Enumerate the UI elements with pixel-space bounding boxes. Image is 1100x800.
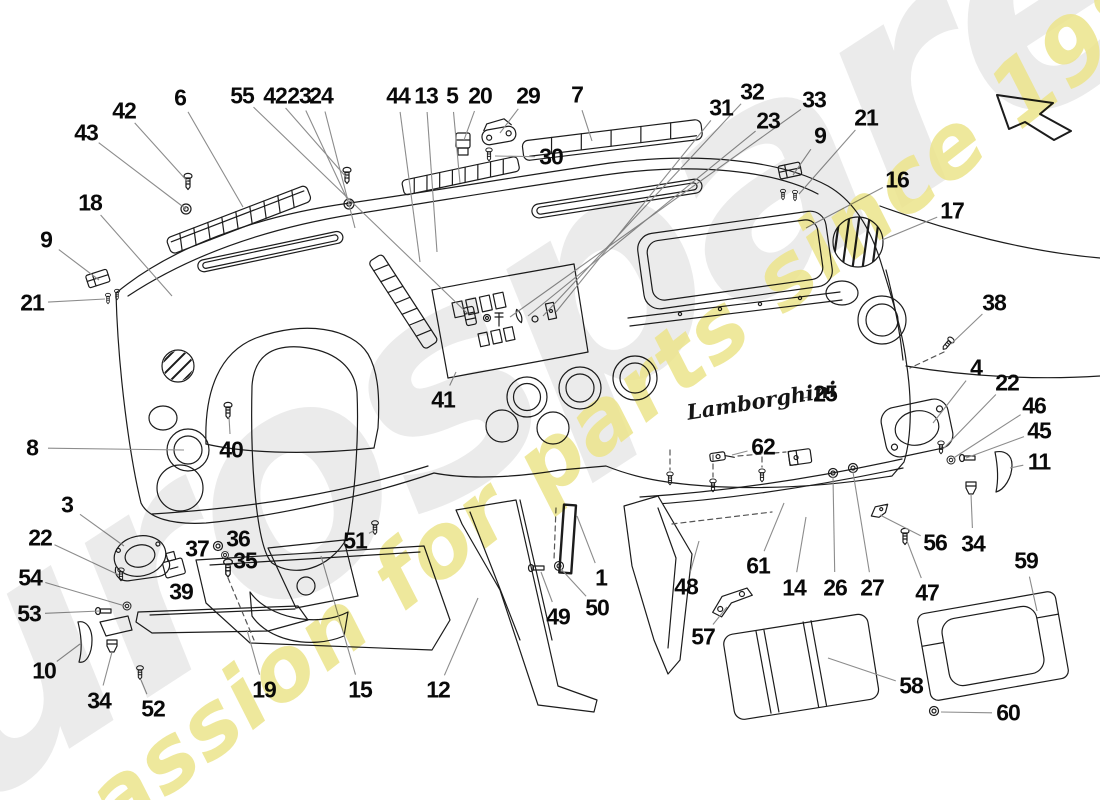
leader-line [828, 658, 896, 681]
callout-32: 32 [740, 81, 764, 104]
leader-line [45, 611, 100, 613]
callout-26: 26 [823, 577, 847, 600]
leader-line [561, 569, 586, 596]
leader-line [247, 630, 260, 675]
callout-21: 21 [854, 107, 878, 130]
callout-9: 9 [40, 229, 52, 252]
leader-line [793, 149, 811, 175]
leader-line [907, 541, 921, 578]
callout-49: 49 [546, 606, 570, 629]
callout-27: 27 [860, 577, 884, 600]
callout-11: 11 [1028, 451, 1050, 474]
callout-24: 24 [309, 85, 333, 108]
leader-line [80, 514, 124, 546]
leader-line [369, 530, 375, 533]
leader-line [966, 437, 1024, 458]
callout-40: 40 [219, 439, 243, 462]
callout-10: 10 [32, 660, 56, 683]
callout-30: 30 [539, 146, 563, 169]
leader-line [464, 111, 475, 140]
leader-line [971, 494, 972, 528]
leader-line [59, 250, 99, 280]
leader-line [101, 215, 172, 296]
callout-18: 18 [78, 192, 102, 215]
leader-line [1010, 465, 1023, 468]
leader-line [500, 109, 518, 133]
callout-37: 37 [185, 538, 209, 561]
callout-34: 34 [87, 690, 111, 713]
callout-13: 13 [414, 85, 438, 108]
leader-line [1029, 577, 1037, 611]
callout-22: 22 [28, 527, 52, 550]
leader-line [582, 110, 592, 141]
leader-line [951, 314, 982, 344]
leader-line [450, 372, 456, 386]
callout-33: 33 [802, 89, 826, 112]
callout-42: 42 [263, 85, 287, 108]
callout-55: 55 [230, 85, 254, 108]
callout-16: 16 [885, 169, 909, 192]
callout-54: 54 [18, 567, 42, 590]
callout-56: 56 [923, 532, 947, 555]
parts-diagram-page: 4342655422324441352029730313223339211617… [0, 0, 1100, 800]
leader-line [427, 112, 437, 252]
leader-line [135, 123, 188, 182]
callout-53: 53 [17, 603, 41, 626]
callout-1: 1 [595, 567, 607, 590]
leader-line [48, 448, 184, 450]
leader-line [853, 472, 869, 572]
leader-line [556, 120, 711, 312]
leader-line [321, 556, 356, 675]
callout-7: 7 [571, 84, 583, 107]
callout-45: 45 [1027, 420, 1051, 443]
leader-line [732, 451, 748, 455]
callout-47: 47 [915, 582, 939, 605]
leader-line [400, 112, 420, 262]
callout-42: 42 [112, 100, 136, 123]
leader-line [952, 415, 1021, 459]
callout-8: 8 [26, 437, 38, 460]
leader-line [764, 503, 784, 551]
callout-61: 61 [746, 555, 770, 578]
leader-line [882, 217, 937, 240]
leader-line [57, 644, 80, 661]
leader-line [541, 572, 552, 602]
leader-line [45, 583, 125, 607]
callout-35: 35 [233, 550, 257, 573]
leader-line [254, 107, 469, 314]
callout-3: 3 [61, 494, 73, 517]
callout-31: 31 [709, 97, 733, 120]
leader-line [713, 607, 727, 625]
leader-line [306, 111, 349, 204]
leader-line [48, 299, 105, 302]
leader-line [690, 541, 699, 572]
callout-12: 12 [426, 679, 450, 702]
callout-14: 14 [782, 577, 806, 600]
callout-4: 4 [970, 357, 982, 380]
leader-line [325, 112, 355, 229]
callout-41: 41 [431, 389, 455, 412]
callout-6: 6 [174, 87, 186, 110]
callout-19: 19 [252, 679, 276, 702]
leader-line [806, 188, 883, 229]
leader-line [797, 517, 806, 572]
callout-51: 51 [343, 530, 367, 553]
leader-line [454, 112, 461, 183]
callout-44: 44 [386, 85, 410, 108]
callout-62: 62 [751, 436, 775, 459]
leader-line [577, 516, 595, 563]
leader-lines-layer [0, 0, 1100, 800]
callout-38: 38 [982, 292, 1006, 315]
callout-23: 23 [287, 85, 311, 108]
leader-line [510, 109, 801, 317]
callout-43: 43 [74, 122, 98, 145]
leader-line [833, 477, 835, 572]
callout-52: 52 [141, 698, 165, 721]
leader-line [99, 143, 186, 209]
callout-29: 29 [516, 85, 540, 108]
leader-line [543, 104, 741, 316]
callout-59: 59 [1014, 550, 1038, 573]
callout-60: 60 [996, 702, 1020, 725]
leader-line [55, 545, 120, 575]
callout-5: 5 [446, 85, 458, 108]
leader-line [880, 515, 921, 536]
callout-34: 34 [961, 533, 985, 556]
callout-39: 39 [169, 581, 193, 604]
leader-line [141, 680, 147, 694]
leader-line [229, 417, 230, 434]
callout-23: 23 [756, 110, 780, 133]
leader-line [943, 395, 996, 450]
callout-9: 9 [814, 125, 826, 148]
leader-line [444, 598, 478, 675]
leader-line [103, 652, 112, 686]
callout-21: 21 [20, 292, 44, 315]
leader-line [799, 130, 855, 194]
callout-57: 57 [691, 626, 715, 649]
leader-line [941, 712, 992, 713]
callout-50: 50 [585, 597, 609, 620]
callout-46: 46 [1022, 395, 1046, 418]
leader-line [933, 381, 966, 423]
callout-20: 20 [468, 85, 492, 108]
callout-22: 22 [995, 372, 1019, 395]
callout-15: 15 [348, 679, 372, 702]
callout-48: 48 [674, 576, 698, 599]
leader-line [495, 156, 535, 157]
leader-line [188, 112, 243, 207]
callout-17: 17 [940, 200, 964, 223]
callout-58: 58 [899, 675, 923, 698]
